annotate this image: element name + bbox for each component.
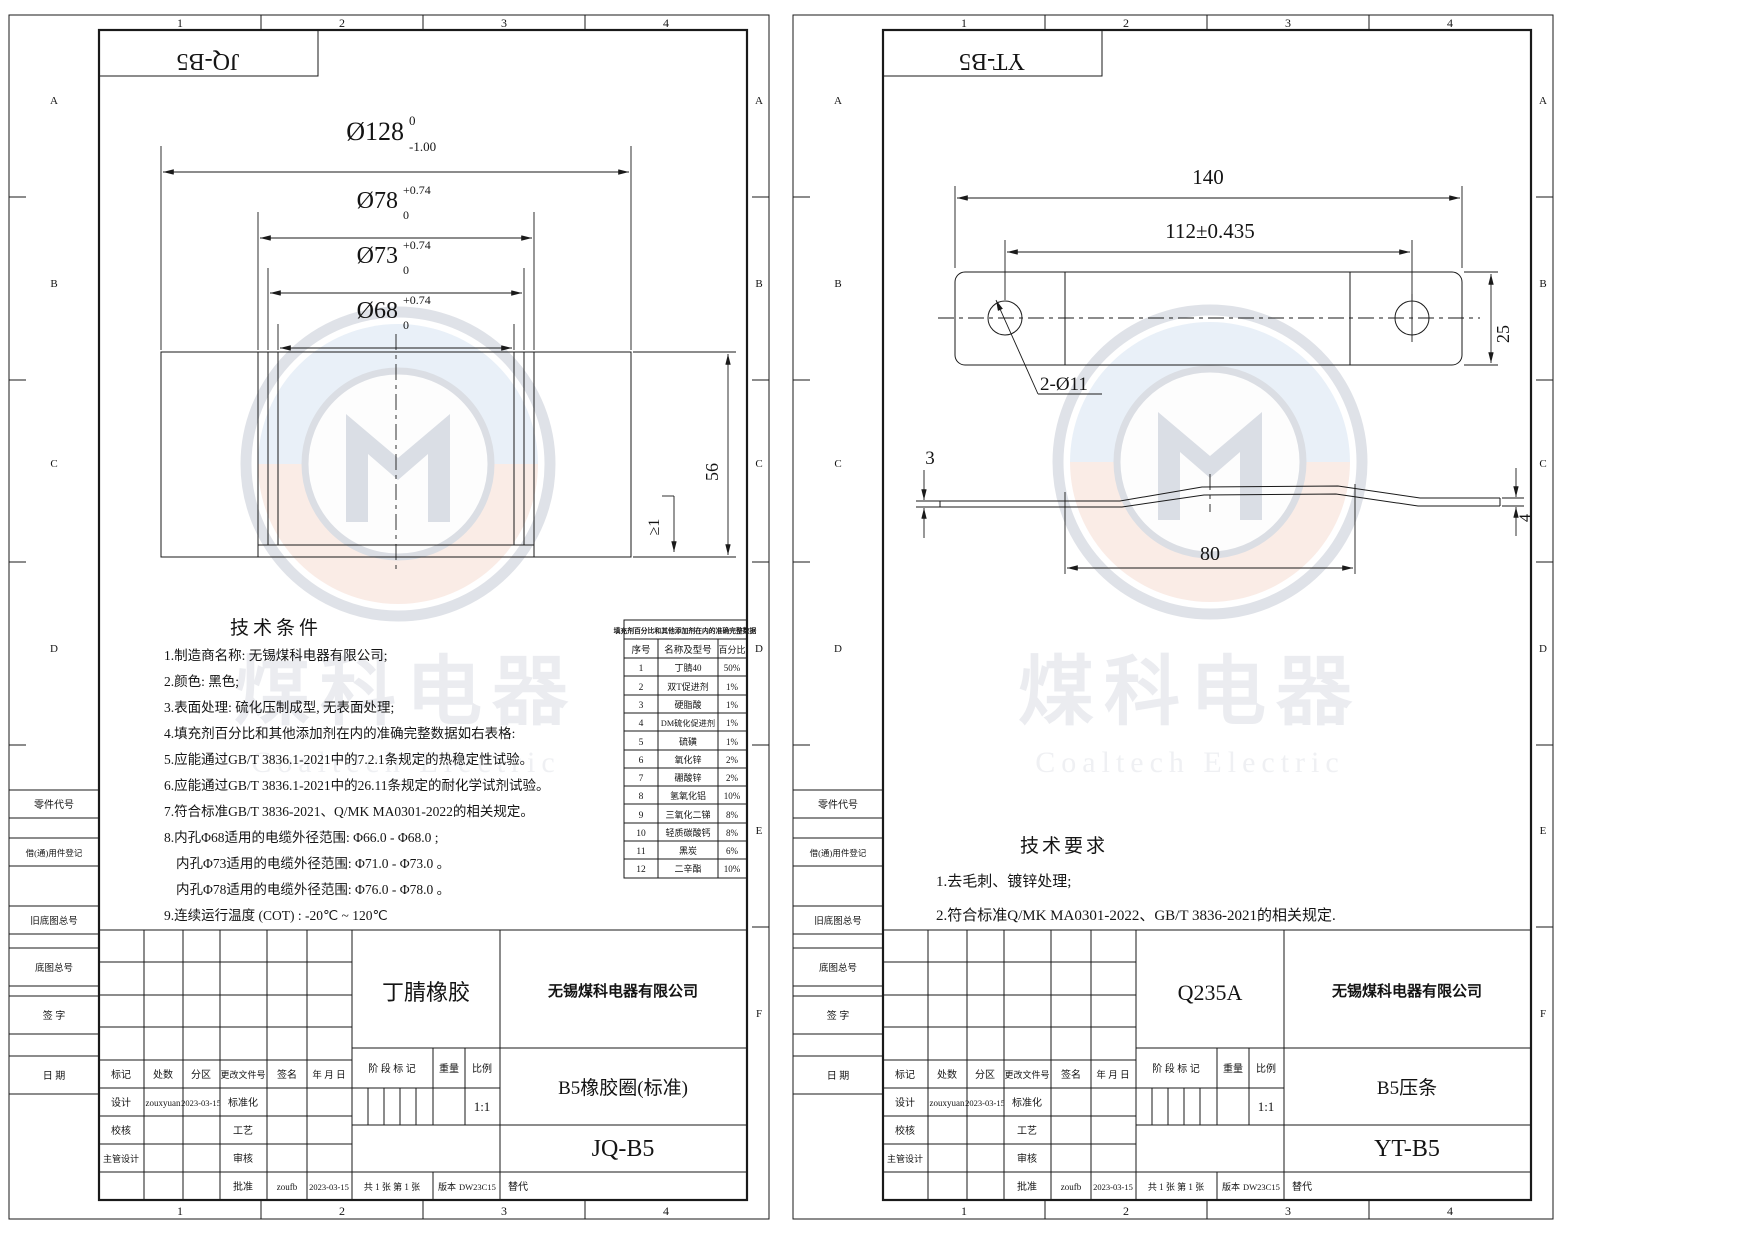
tb-sign: 签名 (277, 1068, 297, 1081)
tb-change-doc: 更改文件号 (220, 1069, 265, 1080)
table-cell: 硬脂酸 (674, 699, 701, 710)
flipped-code: YT-B5 (959, 48, 1025, 74)
tech-item: 2.符合标准Q/MK MA0301-2022、GB/T 3836-2021的相关… (936, 907, 1336, 924)
tech-title: 技术要求 (1020, 835, 1108, 857)
table-cell: 轻质碳酸钙 (665, 827, 710, 838)
tech-item: 5.应能通过GB/T 3836.1-2021中的7.2.1条规定的热稳定性试验。 (164, 751, 533, 767)
table-cell: 10% (724, 864, 741, 874)
row-label: C (834, 458, 841, 470)
tb-design: 设计 (111, 1096, 131, 1109)
tech-item: 6.应能通过GB/T 3836.1-2021中的26.11条规定的耐化学试剂试验… (164, 777, 550, 793)
dim-centers-112: 112±0.435 (1005, 219, 1412, 300)
tb-mark: 标记 (895, 1069, 915, 1081)
tb-count: 处数 (153, 1068, 173, 1081)
margin-box-borrow: 借(通)用件登记 (810, 848, 867, 858)
tb-design: 设计 (895, 1096, 915, 1109)
margin-box-old-master: 旧底图总号 (30, 915, 78, 927)
row-label: D (834, 643, 842, 655)
table-cell: 1 (639, 664, 644, 674)
table-cell: 2% (726, 755, 739, 765)
table-cell: 10% (724, 791, 741, 801)
table-header: 百分比 (718, 644, 745, 655)
tb-material: Q235A (1178, 980, 1243, 1005)
col-label: 1 (177, 16, 183, 30)
table-cell: 3 (639, 701, 644, 711)
drawing-canvas: 煤科电器 Coaltech Electric 1 2 3 4 1 2 3 4 A… (0, 0, 1754, 1240)
tech-item: 2.颜色: 黑色; (164, 673, 239, 689)
margin-box-old-master: 旧底图总号 (814, 915, 862, 927)
table-cell: 12 (636, 865, 646, 875)
tb-design-date: 2023-03-15 (965, 1098, 1005, 1108)
table-cell: 二辛酯 (674, 863, 701, 874)
tb-part-name: B5橡胶圈(标准) (558, 1077, 688, 1099)
tb-process: 工艺 (1017, 1125, 1037, 1137)
margin-box-part-no: 零件代号 (34, 799, 74, 811)
tb-scale-value: 1:1 (1258, 1099, 1275, 1114)
table-cell: 11 (636, 847, 645, 857)
tb-scale-value: 1:1 (474, 1099, 491, 1114)
table-cell: 4 (639, 719, 644, 729)
tb-approve-date: 2023-03-15 (309, 1182, 349, 1192)
table-cell: 黑炭 (679, 846, 697, 856)
table-title: 填充剂百分比和其他添加剂在内的准确完整数据 (614, 626, 757, 635)
tb-part-name: B5压条 (1377, 1077, 1437, 1099)
tb-approve-date: 2023-03-15 (1093, 1182, 1133, 1192)
margin-box-sign: 签 字 (43, 1009, 66, 1022)
tech-item: 1.去毛刺、镀锌处理; (936, 873, 1071, 890)
dim-value: ≥1 (646, 519, 663, 536)
title-block: 标记 处数 分区 更改文件号 签名 年 月 日 设计 zouxyuan 2023… (103, 980, 698, 1193)
dim-value: 3 (925, 448, 935, 469)
dim-value: 25 (1493, 325, 1513, 343)
tb-material: 丁腈橡胶 (382, 980, 470, 1005)
dim-value: 80 (1200, 543, 1220, 565)
title-block: 标记 处数 分区 更改文件号 签名 年 月 日 设计 zouxyuan 2023… (887, 980, 1482, 1193)
table-cell: 5 (639, 738, 644, 748)
row-label: C (1539, 458, 1546, 470)
tb-approver: zoufb (1061, 1182, 1082, 1192)
dim-width-25: 25 (1464, 272, 1513, 365)
watermark-en: Coaltech Electric (1035, 746, 1344, 779)
dim-value: Ø68 (357, 298, 398, 324)
dim-tol-low: -1.00 (409, 139, 436, 154)
dim-value: 2-Ø11 (1040, 374, 1088, 395)
margin-box-date: 日 期 (43, 1070, 66, 1082)
tb-approver: zoufb (277, 1182, 298, 1192)
table-cell: DM硫化促进剂 (661, 718, 715, 728)
tb-design-date: 2023-03-15 (181, 1098, 221, 1108)
flipped-code: JQ-B5 (177, 48, 240, 74)
col-label: 3 (501, 1204, 507, 1218)
tb-zone: 分区 (975, 1069, 995, 1081)
table-cell: 7 (639, 774, 644, 784)
col-label: 3 (501, 16, 507, 30)
tb-standard: 标准化 (228, 1096, 258, 1109)
col-label: 2 (1123, 1204, 1129, 1218)
tb-approve: 批准 (233, 1180, 253, 1193)
table-cell: 1% (726, 737, 739, 747)
table-cell: 2 (639, 683, 644, 693)
col-label: 1 (961, 16, 967, 30)
tb-standard: 标准化 (1012, 1096, 1042, 1109)
tb-replace: 替代 (1292, 1180, 1312, 1193)
tech-item: 1.制造商名称: 无锡煤科电器有限公司; (164, 648, 388, 663)
table-cell: 6 (639, 756, 644, 766)
dim-value: 112±0.435 (1165, 219, 1255, 243)
tech-item: 8.内孔Φ68适用的电缆外径范围: Φ66.0 - Φ68.0 ; (164, 830, 438, 845)
row-label: B (50, 278, 57, 290)
tb-count: 处数 (937, 1068, 957, 1081)
row-label: F (756, 1008, 762, 1020)
tb-stage: 阶 段 标 记 (368, 1062, 416, 1075)
watermark-cn: 煤科电器 (234, 651, 578, 735)
tech-item: 7.符合标准GB/T 3836-2021、Q/MK MA0301-2022的相关… (164, 804, 534, 819)
tb-review: 审核 (1017, 1152, 1037, 1165)
row-label: C (755, 458, 762, 470)
dim-lip-min1: ≥1 (646, 496, 674, 552)
margin-box-part-no: 零件代号 (818, 799, 858, 811)
row-label: E (1540, 825, 1547, 837)
tb-check: 校核 (111, 1124, 131, 1137)
dim-thickness-3: 3 (916, 448, 942, 538)
row-label: B (755, 278, 762, 290)
dim-value: 56 (702, 463, 722, 481)
table-cell: 双T促进剂 (667, 681, 709, 692)
row-label: A (834, 95, 842, 107)
tb-version-label: 版本 (438, 1181, 456, 1192)
dim-value: Ø78 (357, 188, 398, 214)
dim-value: 140 (1192, 165, 1224, 189)
margin-box-master: 底图总号 (35, 962, 73, 974)
row-label: D (755, 643, 763, 655)
table-header: 名称及型号 (664, 644, 712, 656)
tech-title: 技术条件 (230, 617, 322, 639)
tb-change-doc: 更改文件号 (1004, 1069, 1049, 1080)
table-cell: 8% (726, 810, 739, 820)
row-label: A (755, 95, 763, 107)
tb-chief: 主管设计 (887, 1153, 923, 1164)
table-cell: 1% (726, 700, 739, 710)
table-cell: 9 (639, 811, 644, 821)
sheet-frame: 1 2 3 4 1 2 3 4 A B C D A B C D E F 零件代号… (793, 15, 1553, 1219)
tb-stage: 阶 段 标 记 (1152, 1062, 1200, 1075)
tb-drawing-code: YT-B5 (1374, 1136, 1440, 1162)
dim-tol-up: +0.74 (403, 183, 431, 197)
tb-zone: 分区 (191, 1069, 211, 1081)
tb-designer: zouxyuan (930, 1098, 965, 1108)
table-cell: 1% (726, 718, 739, 728)
tb-company: 无锡煤科电器有限公司 (1331, 982, 1482, 1000)
tb-process: 工艺 (233, 1125, 253, 1137)
tb-mark: 标记 (111, 1069, 131, 1081)
tb-version-label: 版本 (1222, 1181, 1240, 1192)
col-label: 4 (1447, 16, 1453, 30)
dim-tol-low: 0 (403, 208, 409, 222)
tech-item: 内孔Φ78适用的电缆外径范围: Φ76.0 - Φ78.0 。 (176, 882, 450, 897)
row-label: A (50, 95, 58, 107)
table-cell: 8% (726, 828, 739, 838)
row-label: C (50, 458, 57, 470)
table-cell: 50% (724, 663, 741, 673)
dim-tol-up: +0.74 (403, 238, 431, 252)
col-label: 4 (663, 1204, 669, 1218)
tb-designer: zouxyuan (146, 1098, 181, 1108)
tb-approve: 批准 (1017, 1180, 1037, 1193)
tb-replace: 替代 (508, 1180, 528, 1193)
table-cell: 硫磺 (679, 736, 697, 747)
table-header: 序号 (631, 644, 650, 656)
tb-sign: 签名 (1061, 1068, 1081, 1081)
sheet-yt-b5: 煤科电器 Coaltech Electric 1 2 3 4 1 2 3 4 A… (790, 12, 1556, 1224)
dim-value: Ø128 (346, 117, 404, 146)
dim-holes-2xd11: 2-Ø11 (996, 300, 1102, 395)
watermark-cn: 煤科电器 (1018, 651, 1362, 735)
tb-date: 年 月 日 (1096, 1069, 1129, 1081)
row-label: B (834, 278, 841, 290)
dim-length-140: 140 (955, 165, 1462, 268)
tech-item: 3.表面处理: 硫化压制成型, 无表面处理; (164, 700, 394, 715)
dim-tol-low: 0 (403, 263, 409, 277)
table-cell: 三氧化二锑 (665, 809, 710, 820)
dim-value: 4 (1517, 514, 1534, 522)
margin-box-date: 日 期 (827, 1070, 850, 1082)
row-label: F (1540, 1008, 1546, 1020)
table-cell: 1% (726, 682, 739, 692)
tech-item: 内孔Φ73适用的电缆外径范围: Φ71.0 - Φ73.0 。 (176, 856, 450, 871)
tb-company: 无锡煤科电器有限公司 (547, 982, 698, 1000)
tech-requirements: 技术要求 1.去毛刺、镀锌处理; 2.符合标准Q/MK MA0301-2022、… (936, 835, 1336, 924)
tech-item: 9.连续运行温度 (COT) : -20℃ ~ 120℃ (164, 908, 388, 923)
col-label: 1 (961, 1204, 967, 1218)
margin-box-borrow: 借(通)用件登记 (26, 848, 83, 858)
tb-chief: 主管设计 (103, 1153, 139, 1164)
col-label: 4 (1447, 1204, 1453, 1218)
row-label: B (1539, 278, 1546, 290)
tb-scale: 比例 (472, 1062, 492, 1075)
dim-thickness-4: 4 (1502, 468, 1534, 536)
margin-box-sign: 签 字 (827, 1009, 850, 1022)
table-cell: 硼酸锌 (674, 772, 701, 783)
tb-weight: 重量 (439, 1062, 459, 1075)
margin-box-master: 底图总号 (819, 962, 857, 974)
tb-pages: 共 1 张 第 1 张 (364, 1181, 420, 1192)
tb-version-value: DW23C15 (1243, 1182, 1280, 1192)
table-cell: 氢氧化铝 (670, 790, 706, 801)
tb-weight: 重量 (1223, 1062, 1243, 1075)
row-label: D (50, 643, 58, 655)
col-label: 2 (339, 1204, 345, 1218)
tb-drawing-code: JQ-B5 (592, 1136, 655, 1162)
dim-tol-up: +0.74 (403, 293, 431, 307)
tb-date: 年 月 日 (312, 1069, 345, 1081)
dim-tol-up: 0 (409, 113, 416, 128)
col-label: 2 (1123, 16, 1129, 30)
tb-scale: 比例 (1256, 1062, 1276, 1075)
table-cell: 10 (636, 829, 646, 839)
col-label: 2 (339, 16, 345, 30)
filler-table: 填充剂百分比和其他添加剂在内的准确完整数据 序号 名称及型号 百分比 1丁腈40… (614, 620, 757, 878)
table-cell: 丁腈40 (674, 662, 702, 673)
table-cell: 6% (726, 846, 739, 856)
row-label: D (1539, 643, 1547, 655)
table-cell: 8 (639, 792, 644, 802)
col-label: 3 (1285, 1204, 1291, 1218)
table-cell: 氧化锌 (674, 754, 701, 765)
tb-review: 审核 (233, 1152, 253, 1165)
tb-check: 校核 (895, 1124, 915, 1137)
sheet-jq-b5: 煤科电器 Coaltech Electric 1 2 3 4 1 2 3 4 A… (6, 12, 772, 1224)
dim-tol-low: 0 (403, 318, 409, 332)
dim-value: Ø73 (357, 243, 398, 269)
row-label: E (756, 825, 763, 837)
table-cell: 2% (726, 773, 739, 783)
tech-item: 4.填充剂百分比和其他添加剂在内的准确完整数据如右表格: (164, 726, 515, 741)
col-label: 1 (177, 1204, 183, 1218)
row-label: A (1539, 95, 1547, 107)
col-label: 3 (1285, 16, 1291, 30)
tb-version-value: DW23C15 (459, 1182, 496, 1192)
tb-pages: 共 1 张 第 1 张 (1148, 1181, 1204, 1192)
col-label: 4 (663, 16, 669, 30)
